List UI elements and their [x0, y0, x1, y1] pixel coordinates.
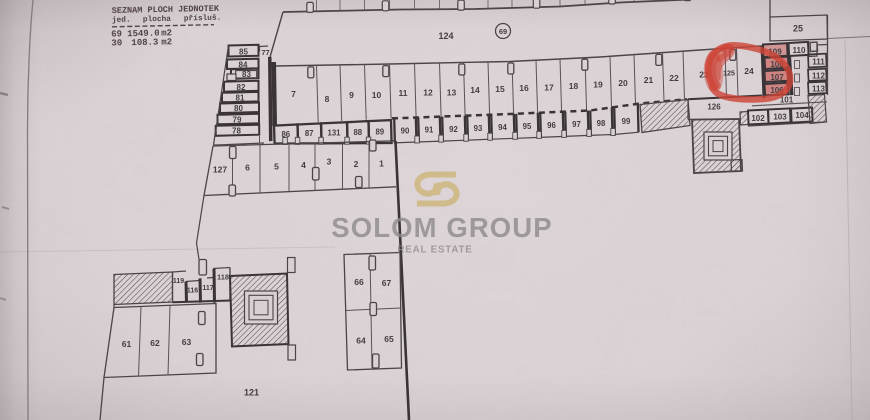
- svg-text:18: 18: [569, 81, 579, 91]
- svg-text:jed.: jed.: [112, 17, 131, 25]
- svg-text:2: 2: [354, 159, 359, 169]
- svg-text:20: 20: [618, 78, 628, 88]
- svg-text:15: 15: [495, 84, 505, 94]
- svg-text:12: 12: [423, 88, 433, 98]
- svg-text:94: 94: [498, 123, 507, 132]
- svg-text:102: 102: [751, 114, 765, 123]
- svg-text:111: 111: [812, 58, 825, 67]
- svg-text:SOLOM GROUP: SOLOM GROUP: [331, 212, 552, 243]
- svg-text:11: 11: [399, 88, 408, 98]
- svg-text:110: 110: [793, 46, 806, 55]
- svg-text:9: 9: [349, 90, 354, 100]
- svg-text:3: 3: [327, 157, 332, 167]
- svg-text:8: 8: [325, 94, 330, 104]
- svg-text:7: 7: [291, 89, 296, 99]
- svg-text:24: 24: [744, 66, 754, 76]
- svg-text:62: 62: [150, 338, 160, 348]
- svg-text:22: 22: [669, 73, 679, 83]
- svg-text:69: 69: [499, 27, 507, 36]
- svg-text:97: 97: [572, 120, 581, 129]
- svg-text:63: 63: [182, 337, 192, 347]
- svg-text:118: 118: [217, 273, 229, 282]
- svg-text:113: 113: [812, 85, 825, 94]
- svg-text:88: 88: [353, 128, 362, 137]
- svg-text:82: 82: [237, 83, 246, 92]
- svg-text:90: 90: [401, 127, 410, 136]
- svg-text:116: 116: [187, 288, 198, 295]
- svg-text:78: 78: [232, 126, 241, 135]
- svg-text:112: 112: [812, 72, 825, 81]
- svg-text:přísluš.: přísluš.: [184, 15, 222, 24]
- svg-text:19: 19: [593, 80, 603, 90]
- svg-text:83: 83: [242, 70, 251, 79]
- svg-text:21: 21: [644, 75, 654, 85]
- svg-text:80: 80: [234, 104, 243, 113]
- svg-text:30: 30: [111, 38, 122, 48]
- svg-text:65: 65: [384, 334, 394, 344]
- svg-text:89: 89: [375, 127, 384, 136]
- svg-text:91: 91: [425, 126, 434, 135]
- svg-text:61: 61: [122, 339, 132, 349]
- svg-text:85: 85: [239, 48, 248, 57]
- svg-text:93: 93: [474, 124, 483, 133]
- svg-text:25: 25: [793, 24, 803, 34]
- svg-text:67: 67: [382, 278, 392, 288]
- svg-text:127: 127: [213, 165, 227, 175]
- svg-text:1: 1: [379, 159, 384, 169]
- svg-text:6: 6: [245, 163, 250, 173]
- svg-text:81: 81: [236, 94, 245, 103]
- svg-text:REAL ESTATE: REAL ESTATE: [397, 245, 472, 256]
- svg-text:103: 103: [773, 113, 787, 122]
- svg-text:125: 125: [723, 71, 735, 78]
- svg-text:plocha: plocha: [143, 16, 172, 25]
- svg-text:4: 4: [301, 160, 306, 170]
- svg-text:126: 126: [707, 103, 721, 112]
- svg-text:96: 96: [547, 121, 556, 130]
- svg-text:77: 77: [261, 48, 269, 57]
- svg-text:98: 98: [597, 119, 606, 128]
- svg-text:87: 87: [305, 129, 314, 138]
- svg-text:79: 79: [233, 116, 242, 125]
- svg-text:14: 14: [470, 85, 480, 95]
- svg-text:104: 104: [795, 111, 809, 120]
- svg-text:119: 119: [173, 278, 184, 285]
- svg-text:5: 5: [274, 162, 279, 172]
- svg-text:10: 10: [372, 90, 382, 100]
- svg-text:92: 92: [449, 125, 458, 134]
- svg-text:108.3: 108.3: [131, 38, 158, 49]
- svg-text:117: 117: [202, 285, 213, 292]
- svg-text:124: 124: [438, 31, 453, 41]
- svg-text:95: 95: [523, 122, 532, 131]
- svg-text:17: 17: [544, 83, 554, 93]
- svg-text:66: 66: [354, 277, 364, 287]
- svg-text:m2: m2: [161, 37, 172, 47]
- svg-text:131: 131: [327, 129, 341, 138]
- svg-text:99: 99: [622, 117, 631, 126]
- svg-text:64: 64: [356, 336, 366, 346]
- svg-text:13: 13: [447, 88, 457, 98]
- svg-text:16: 16: [519, 83, 529, 93]
- svg-text:107: 107: [770, 73, 784, 82]
- svg-text:121: 121: [244, 388, 259, 398]
